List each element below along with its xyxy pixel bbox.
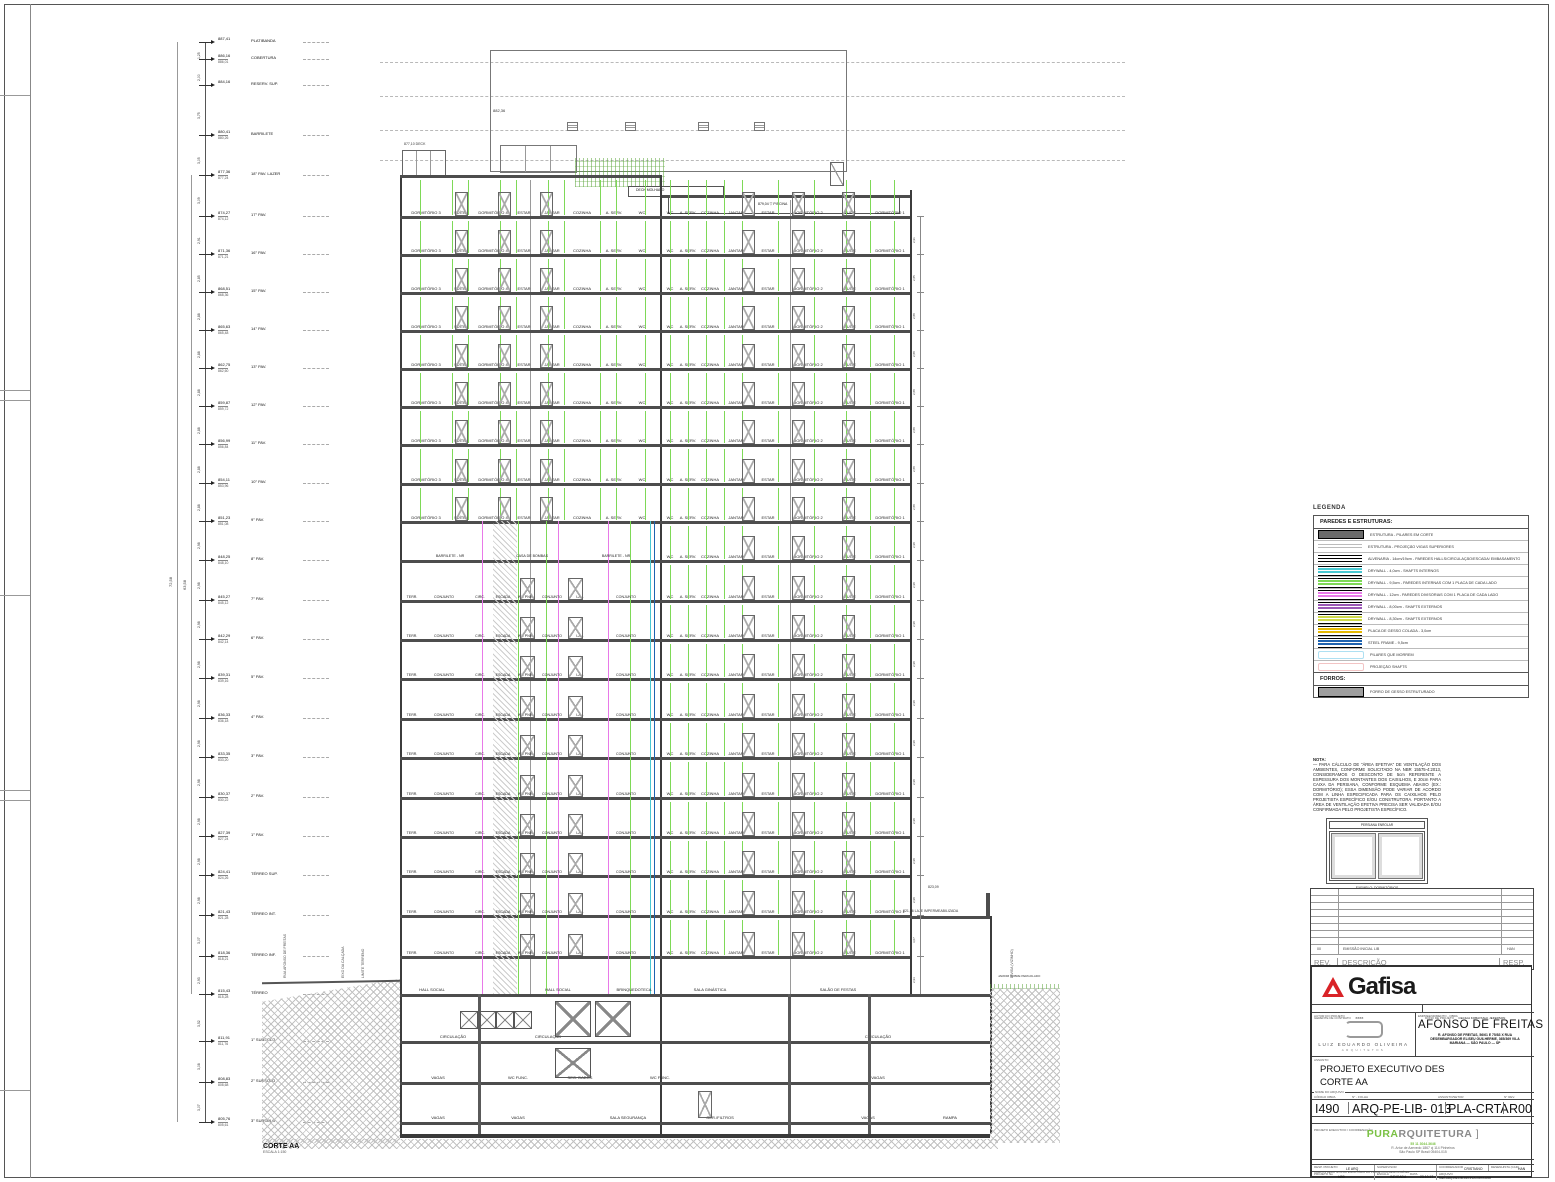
file-labels-row: NOME DO ARQUIVO CÓDIGO OBRA N° - FOLHA A… — [1312, 1093, 1534, 1100]
dim-chain-tick — [917, 521, 924, 522]
level-gap-dim: 3,75 — [197, 112, 201, 119]
basement-room-label: VAGAS — [511, 1116, 525, 1120]
drywall-wall-line-green — [814, 723, 815, 756]
level-elevation: 886,16 — [218, 54, 230, 58]
drywall-wall-line-green — [688, 449, 689, 481]
drywall-wall-line-green — [670, 180, 671, 215]
drywall-wall-line-green — [778, 180, 779, 215]
setor-value: PLA-CRTA — [1448, 1102, 1509, 1116]
ground-room-label: HALL SOCIAL — [419, 988, 445, 992]
level-marker-arrow — [211, 481, 215, 485]
floor-slab — [400, 560, 910, 563]
roof-vent-icon — [698, 122, 709, 131]
room-label: COZINHA — [701, 713, 719, 717]
drywall-wall-line-green — [724, 723, 725, 756]
drywall-wall-line-green — [645, 335, 646, 367]
dim-chain-value: 2,98 — [912, 819, 916, 825]
fold-mark — [0, 800, 30, 801]
elevator-door — [568, 814, 583, 836]
room-label: COZINHA — [701, 555, 719, 559]
room-label: A. SERV. — [606, 363, 622, 367]
room-label: ESTAR — [761, 713, 774, 717]
legend-swatch — [1318, 530, 1364, 539]
drywall-wall-line-green — [814, 411, 815, 443]
room-label: DORMITÓRIO 3 — [411, 287, 440, 291]
dim-chain-tick — [917, 718, 924, 719]
room-label: ESTAR — [517, 439, 530, 443]
door-leaf — [540, 497, 553, 521]
level-elevation-2: 815,28 — [218, 994, 228, 999]
door-leaf — [742, 733, 755, 757]
annex-right-wall — [990, 916, 992, 994]
drywall-wall-line-green — [894, 880, 895, 913]
drywall-wall-line-green — [724, 802, 725, 835]
drywall-wall-line-green — [724, 880, 725, 913]
drywall-wall-line-green — [870, 335, 871, 367]
level-elevation-2: 865,48 — [218, 330, 228, 335]
level-elevation-2: 808,68 — [218, 1082, 228, 1087]
site-label: LIMITE TERRENO — [361, 948, 365, 977]
roof-trellis — [575, 158, 665, 187]
floor-slab — [400, 956, 910, 959]
drywall-wall-line-green — [870, 180, 871, 215]
drywall-wall-line-green — [670, 411, 671, 443]
level-marker-arrow — [211, 637, 215, 641]
room-label: DORMITÓRIO 1 — [875, 478, 904, 482]
room-label: DORMITÓRIO 1 — [875, 910, 904, 914]
dim-chain-value: 2,88 — [912, 351, 916, 357]
level-gap-dim: 2,00 — [197, 74, 201, 81]
level-marker-arrow — [211, 404, 215, 408]
dim-chain-value: 2,91 — [912, 237, 916, 243]
escala-value: INDICADA — [1390, 1175, 1406, 1179]
room-label: ESTAR — [761, 831, 774, 835]
dim-chain-tick — [917, 797, 924, 798]
room-label: ESTAR — [517, 363, 530, 367]
room-label: TERR. — [407, 713, 418, 717]
room-label: COZINHA — [701, 325, 719, 329]
data-value: 23.10.17 — [1420, 1175, 1433, 1179]
drywall-wall-line-green — [645, 259, 646, 291]
level-gap-dim: 2,98 — [197, 779, 201, 786]
drywall-wall-line-green — [870, 526, 871, 559]
drywall-wall-line-green — [870, 411, 871, 443]
elevator-door — [568, 735, 583, 757]
drywall-wall-line-green — [894, 180, 895, 215]
drywall-wall-line-green — [778, 373, 779, 405]
basement-room-label: VAGAS — [871, 1076, 885, 1080]
pura-addr2: São Paulo SP Brasil 05404-015 — [1312, 1150, 1534, 1154]
level-marker-arrow — [211, 992, 215, 996]
room-label: CONJUNTO — [616, 870, 636, 874]
escala-label: ESCALA — [1377, 1172, 1389, 1176]
barrilete-label: BARRILETE - NR — [436, 554, 464, 558]
drywall-wall-line-green — [688, 762, 689, 795]
elevator-door — [520, 617, 535, 639]
setor-label: ASSUNTO/SETOR — [1438, 1095, 1464, 1099]
room-label: ESTAR — [761, 595, 774, 599]
floor-slab — [400, 444, 910, 447]
level-gap-dim: 3,08 — [197, 1064, 201, 1071]
floor-slab — [400, 330, 910, 333]
drywall-wall-line-green — [688, 180, 689, 215]
dim-chain-value: 2,98 — [912, 779, 916, 785]
room-label: CONJUNTO — [434, 673, 454, 677]
dim-chain-tick — [917, 757, 924, 758]
room-label: ESTAR — [761, 325, 774, 329]
room-label: ESTAR — [761, 951, 774, 955]
level-leader — [303, 42, 329, 43]
folha-label: N° - FOLHA — [1352, 1095, 1368, 1099]
level-gap-dim: 2,98 — [197, 740, 201, 747]
level-elevation-2: 845,12 — [218, 600, 228, 605]
level-elevation: 874,27 — [218, 211, 230, 215]
level-elevation-2: 833,20 — [218, 757, 228, 762]
section-scale: ESCALA 1:150 — [263, 1150, 299, 1154]
elevator-door — [520, 934, 535, 956]
drywall-wall-line-green — [452, 259, 453, 291]
drywall-wall-line-green — [778, 880, 779, 913]
level-gap-dim: 3,09 — [197, 198, 201, 205]
elevator-pit — [595, 1001, 631, 1037]
room-label: TERR. — [407, 595, 418, 599]
codigo-obra-value: I490 — [1315, 1102, 1339, 1116]
drywall-wall-line-green — [870, 683, 871, 716]
dim-chain-value: 2,98 — [912, 582, 916, 588]
drywall-wall-line-green — [420, 259, 421, 291]
room-label: DORMITÓRIO 1 — [875, 211, 904, 215]
room-label: ESTAR — [761, 363, 774, 367]
overall-dim-line-2 — [191, 175, 192, 994]
level-elevation-2: 818,21 — [218, 956, 228, 961]
door-leaf — [742, 812, 755, 836]
level-marker-arrow — [211, 954, 215, 958]
drawing-sheet: 72,5863,58887,41PLATIBANDA886,16886,01CO… — [0, 0, 1555, 1182]
level-marker-arrow — [211, 834, 215, 838]
room-label: DORMITÓRIO 3 — [411, 439, 440, 443]
drywall-wall-line-green — [706, 180, 707, 215]
drywall-wall-line-green — [546, 521, 547, 995]
drywall-wall-line-green — [870, 605, 871, 638]
level-elevation: 827,39 — [218, 831, 230, 835]
door-leaf — [742, 773, 755, 797]
level-elevation: 839,31 — [218, 673, 230, 677]
level-elevation-2: 859,72 — [218, 406, 228, 411]
level-leader — [303, 956, 329, 957]
basement-column — [868, 994, 871, 1133]
drywall-wall-line-green — [564, 297, 565, 329]
room-label: COZINHA — [701, 363, 719, 367]
room-label: CONJUNTO — [434, 634, 454, 638]
elevator-door — [520, 656, 535, 678]
door-leaf — [455, 497, 468, 521]
drywall-wall-line-green — [706, 565, 707, 598]
nome-arquivo-label: NOME DO ARQUIVO — [1314, 1090, 1345, 1094]
room-label: ESTAR — [761, 401, 774, 405]
level-elevation: 811,91 — [218, 1036, 230, 1040]
room-label: COZINHA — [701, 211, 719, 215]
room-label: TERR. — [407, 673, 418, 677]
drywall-wall-line-green — [870, 841, 871, 874]
level-gap-dim: 2,88 — [197, 428, 201, 435]
room-label: TERR. — [407, 870, 418, 874]
door-leaf — [498, 497, 511, 521]
level-elevation: 859,87 — [218, 401, 230, 405]
room-label: ESCADA — [496, 910, 511, 914]
deck-left-elev: 877,10 DECK — [404, 142, 425, 146]
drywall-wall-line-green — [778, 335, 779, 367]
fold-mark — [0, 1090, 30, 1091]
drywall-wall-line-green — [468, 373, 469, 405]
room-label: COZINHA — [573, 363, 591, 367]
site-label: RUA AFONSO DE FREITAS — [283, 933, 287, 977]
room-label: DORMITÓRIO 1 — [875, 555, 904, 559]
room-label: DORMITÓRIO 1 — [875, 287, 904, 291]
level-gap-dim: 2,98 — [197, 622, 201, 629]
drywall-wall-line-green — [616, 221, 617, 253]
drywall-wall-line-green — [468, 297, 469, 329]
codigo-obra-label: CÓDIGO OBRA — [1314, 1095, 1336, 1099]
dim-chain-tick — [917, 560, 924, 561]
level-label: 1° PAV. — [251, 832, 264, 837]
legend-row-text: ESTRUTURA - PROJEÇÃO VIGAS SUPERIORES — [1368, 545, 1454, 549]
room-label: A. SERV. — [606, 516, 622, 520]
door-leaf — [540, 459, 553, 483]
room-label: CONJUNTO — [434, 951, 454, 955]
dim-chain-tick — [917, 915, 924, 916]
dim-chain-tick — [917, 678, 924, 679]
level-elevation: 851,23 — [218, 516, 230, 520]
room-label: CONJUNTO — [434, 870, 454, 874]
drywall-wall-line-green — [706, 802, 707, 835]
door-leaf — [792, 344, 805, 368]
dim-chain-value: 2,98 — [912, 661, 916, 667]
drywall-wall-line-green — [814, 683, 815, 716]
room-label: CONJUNTO — [434, 910, 454, 914]
elevator-door — [568, 853, 583, 875]
legend-row-text: PLACA DE GESSO COLADA - 3,0cm — [1368, 629, 1431, 633]
room-label: CONJUNTO — [542, 792, 562, 796]
drywall-wall-line-green — [688, 259, 689, 291]
door-leaf — [792, 420, 805, 444]
level-elevation: 856,99 — [218, 439, 230, 443]
ground-room-label: BRINQUEDOTECA — [617, 988, 652, 992]
basement-column — [478, 994, 481, 1133]
legend-row-text: ESTRUTURA - PILARES EM CORTE — [1370, 533, 1433, 537]
elevator-door — [568, 696, 583, 718]
door-leaf — [742, 459, 755, 483]
drywall-wall-line-green — [688, 221, 689, 253]
luiz-eduardo-oliveira-logo-icon — [1345, 1021, 1383, 1038]
room-label: CONJUNTO — [616, 713, 636, 717]
drywall-wall-line-green — [420, 449, 421, 481]
roof-vent-icon — [625, 122, 636, 131]
room-label: DORMITÓRIO 3 — [411, 516, 440, 520]
dim-chain-tick — [917, 875, 924, 876]
drywall-wall-line-green — [894, 841, 895, 874]
level-marker-arrow — [211, 716, 215, 720]
room-label: COZINHA — [701, 478, 719, 482]
drywall-wall-line-green — [688, 723, 689, 756]
door-leaf — [842, 932, 855, 956]
level-label: 8° PAV. — [251, 556, 264, 561]
room-label: A. SERV. — [606, 211, 622, 215]
room-label: ESCADA — [496, 870, 511, 874]
room-label: ESTAR — [761, 910, 774, 914]
level-label: PLATIBANDA — [251, 38, 276, 43]
fold-mark — [0, 595, 30, 596]
level-elevation-2: 830,22 — [218, 797, 228, 802]
door-leaf — [742, 851, 755, 875]
annex-slab-label: 821,36 LAJE IMPERMEABILIZADA — [903, 909, 958, 913]
level-gap-dim: 2,98 — [197, 700, 201, 707]
revision-resp: HAN — [1507, 945, 1515, 954]
basement-room-label: RAMPA — [943, 1116, 957, 1120]
dim-chain-value: 2,88 — [912, 504, 916, 510]
drywall-wall-line-green — [516, 373, 517, 405]
dim-chain-tick — [917, 956, 924, 957]
drywall-wall-line-green — [600, 449, 601, 481]
brand-row: Gafisa — [1312, 967, 1531, 1005]
elevator-door — [568, 578, 583, 600]
assunto-line2: CORTE AA — [1320, 1077, 1532, 1088]
drywall-wall-line-green — [452, 221, 453, 253]
level-leader — [303, 797, 329, 798]
drywall-wall-line-green — [670, 297, 671, 329]
drywall-wall-line-green — [814, 802, 815, 835]
autor-cell: AUTOR DO PROJETO LUIZ EDUARDO OLIVEIRA A… — [1312, 1013, 1416, 1057]
drywall-wall-line-green — [894, 411, 895, 443]
level-elevation-2: 853,96 — [218, 483, 228, 488]
door-leaf — [842, 694, 855, 718]
level-elevation-2: 842,14 — [218, 639, 228, 644]
drywall-wall-line-green — [518, 521, 519, 995]
sheet-margin-line — [30, 4, 31, 1178]
drywall-wall-line-green — [814, 297, 815, 329]
room-label: CONJUNTO — [542, 595, 562, 599]
legend-row: DRYWALL - 8,30cm - SHAFTS EXTERNOS — [1314, 613, 1528, 625]
door-leaf — [792, 694, 805, 718]
room-label: TERR. — [407, 792, 418, 796]
autor-sub: ARQUITETOS — [1314, 1048, 1413, 1052]
drywall-wall-line-green — [645, 488, 646, 520]
drywall-wall-line-green — [724, 644, 725, 677]
fold-mark — [0, 400, 30, 401]
room-label: CONJUNTO — [616, 595, 636, 599]
site-label-right: DIVISA (VIZINHO) — [1010, 949, 1014, 978]
drywall-wall-line-green — [778, 723, 779, 756]
drywall-wall-line-green — [688, 488, 689, 520]
basement-room-label: WC FUNC. — [508, 1076, 528, 1080]
revision-description: EMISSÃO INICIAL LIB — [1343, 945, 1379, 954]
door-leaf — [498, 192, 511, 216]
room-label: CONJUNTO — [434, 831, 454, 835]
level-elevation: 833,35 — [218, 752, 230, 756]
drywall-wall-line-green — [688, 297, 689, 329]
drywall-wall-line-green — [688, 565, 689, 598]
dim-chain-tick — [917, 330, 924, 331]
level-elevation: 877,36 — [218, 170, 230, 174]
door-leaf — [842, 733, 855, 757]
drywall-wall-line-green — [516, 335, 517, 367]
door-leaf — [842, 306, 855, 330]
overall-dim-1: 72,58 — [168, 577, 173, 587]
drywall-wall-line-green — [600, 335, 601, 367]
drywall-wall-line-green — [724, 259, 725, 291]
legend-row: STEEL FRAME - 9,5cm — [1314, 637, 1528, 649]
room-label: CONJUNTO — [542, 713, 562, 717]
floor-slab — [400, 600, 910, 603]
room-label: ESTAR — [517, 401, 530, 405]
drywall-wall-line-green — [616, 488, 617, 520]
floor-slab — [400, 254, 910, 257]
room-label: ESTAR — [517, 516, 530, 520]
room-label: DORMITÓRIO 3 — [411, 401, 440, 405]
level-label: 14° PAV. — [251, 326, 266, 331]
level-label: COBERTURA — [251, 55, 276, 60]
elevator-door — [520, 814, 535, 836]
legend-row: DRYWALL - 4,0cm - SHAFTS INTERNOS — [1314, 565, 1528, 577]
garden-label: JARDIM SOBRE PERGOLADO — [998, 974, 1040, 978]
room-label: A. SERV. — [606, 478, 622, 482]
legend-row-text: PROJEÇÃO SHAFTS — [1370, 665, 1407, 669]
level-label: 3° PAV. — [251, 753, 264, 758]
desenhista-label: DESENHISTA (CAD) — [1491, 1165, 1519, 1169]
level-marker-arrow — [211, 1120, 215, 1124]
drywall-wall-line-green — [894, 526, 895, 559]
level-leader — [303, 718, 329, 719]
drywall-wall-line-green — [706, 526, 707, 559]
roof-vent-icon — [567, 122, 578, 131]
drywall-wall-line-green — [814, 644, 815, 677]
room-label: CONJUNTO — [542, 910, 562, 914]
drywall-wall-line-green — [420, 335, 421, 367]
drywall-wall-line-green — [814, 335, 815, 367]
level-elevation-2: 836,18 — [218, 718, 228, 723]
room-label: CONJUNTO — [616, 792, 636, 796]
drywall-wall-line-green — [894, 565, 895, 598]
core-wall — [660, 175, 662, 1134]
level-elevation: 808,83 — [218, 1077, 230, 1081]
drywall-wall-line-green — [724, 526, 725, 559]
level-gap-dim: 2,88 — [197, 313, 201, 320]
door-leaf — [742, 382, 755, 406]
door-leaf — [842, 615, 855, 639]
deck-slab — [400, 175, 660, 178]
room-label: COZINHA — [701, 870, 719, 874]
drywall-wall-line-green — [724, 565, 725, 598]
drywall-wall-line-green — [870, 644, 871, 677]
room-label: CONJUNTO — [434, 595, 454, 599]
drywall-wall-line-green — [468, 180, 469, 215]
gerente-cell: GERENTE DE CONTRATO XXXX — [1312, 1005, 1423, 1013]
level-marker-arrow — [211, 133, 215, 137]
roof-machine-room — [500, 145, 577, 173]
drywall-wall-line-green — [778, 526, 779, 559]
door-leaf — [455, 192, 468, 216]
room-label: CIRC. — [475, 673, 485, 677]
drywall-wall-line-green — [670, 221, 671, 253]
basement-room-label: SALA SEGURANÇA — [610, 1116, 646, 1120]
resp-projeto-value: LE ARQ — [1346, 1167, 1358, 1171]
legend-row: FORRO DE GESSO ESTRUTURADO — [1314, 686, 1528, 697]
level-leader — [303, 59, 329, 60]
drywall-wall-line-green — [894, 488, 895, 520]
drywall-wall-line-green — [516, 221, 517, 253]
room-label: ESTAR — [761, 870, 774, 874]
level-elevation-2: 824,26 — [218, 875, 228, 880]
room-label: ESTAR — [761, 752, 774, 756]
